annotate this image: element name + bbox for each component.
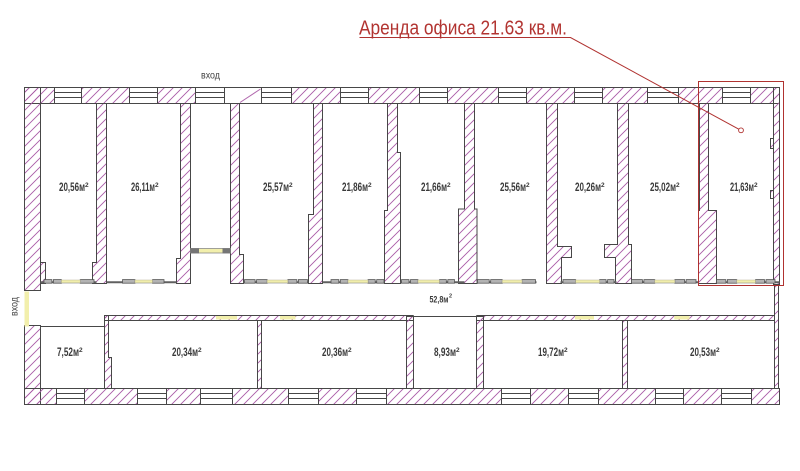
svg-text:26,11м: 26,11м (131, 180, 155, 194)
svg-text:2: 2 (447, 182, 451, 189)
svg-text:2: 2 (85, 182, 89, 189)
svg-text:2: 2 (155, 182, 159, 189)
svg-text:52,8м: 52,8м (430, 295, 449, 306)
svg-text:2: 2 (449, 294, 452, 300)
svg-text:19,72м: 19,72м (538, 345, 564, 359)
svg-text:21,63м: 21,63м (730, 180, 754, 194)
svg-text:20,56м: 20,56м (59, 180, 85, 194)
svg-text:вход: вход (10, 297, 21, 316)
svg-text:2: 2 (601, 182, 605, 189)
svg-text:8,93м: 8,93м (434, 345, 456, 359)
svg-text:7,52м: 7,52м (57, 345, 79, 359)
svg-text:2: 2 (368, 182, 372, 189)
svg-text:2: 2 (526, 182, 530, 189)
svg-text:2: 2 (348, 347, 352, 354)
svg-text:2: 2 (456, 347, 460, 354)
svg-text:2: 2 (564, 347, 568, 354)
svg-text:Аренда офиса 21.63 кв.м.: Аренда офиса 21.63 кв.м. (359, 18, 567, 40)
svg-text:2: 2 (716, 347, 720, 354)
svg-text:2: 2 (676, 182, 680, 189)
svg-text:вход: вход (201, 71, 220, 82)
svg-text:2: 2 (198, 347, 202, 354)
svg-text:25,57м: 25,57м (263, 180, 289, 194)
svg-text:20,36м: 20,36м (322, 345, 348, 359)
svg-text:20,53м: 20,53м (690, 345, 716, 359)
svg-text:2: 2 (289, 182, 293, 189)
svg-text:20,26м: 20,26м (575, 180, 601, 194)
svg-text:2: 2 (79, 347, 83, 354)
svg-text:21,66м: 21,66м (421, 180, 447, 194)
svg-text:25,56м: 25,56м (500, 180, 526, 194)
svg-text:2: 2 (754, 182, 758, 189)
svg-text:20,34м: 20,34м (172, 345, 198, 359)
svg-text:21,86м: 21,86м (342, 180, 368, 194)
svg-text:25,02м: 25,02м (650, 180, 676, 194)
